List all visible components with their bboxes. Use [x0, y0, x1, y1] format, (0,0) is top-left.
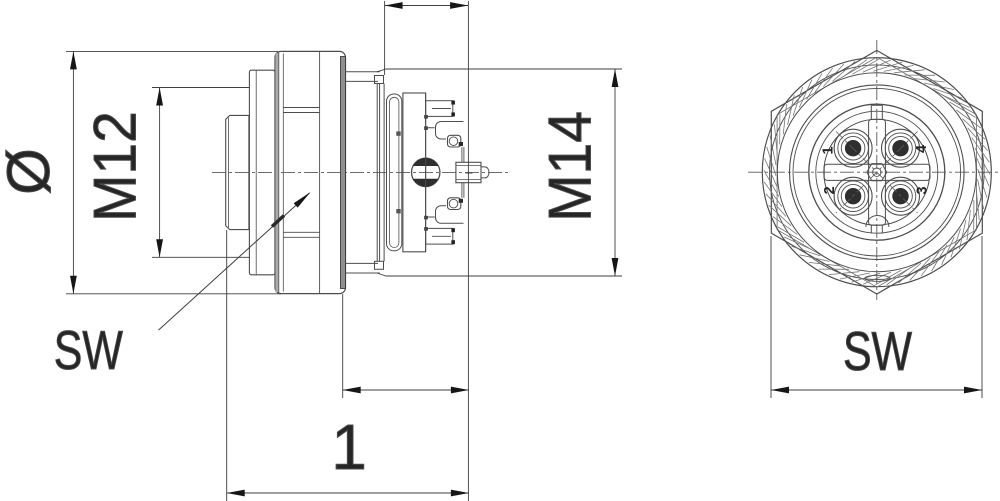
svg-text:2: 2 [822, 186, 838, 194]
svg-text:1: 1 [821, 146, 837, 154]
svg-text:4: 4 [914, 145, 930, 153]
svg-text:M14: M14 [537, 111, 604, 222]
svg-text:SW: SW [843, 321, 912, 382]
svg-text:M12: M12 [82, 111, 149, 222]
svg-text:3: 3 [915, 186, 931, 194]
svg-text:Ø: Ø [0, 148, 62, 195]
svg-text:SW: SW [54, 320, 123, 381]
svg-text:1: 1 [331, 411, 367, 483]
